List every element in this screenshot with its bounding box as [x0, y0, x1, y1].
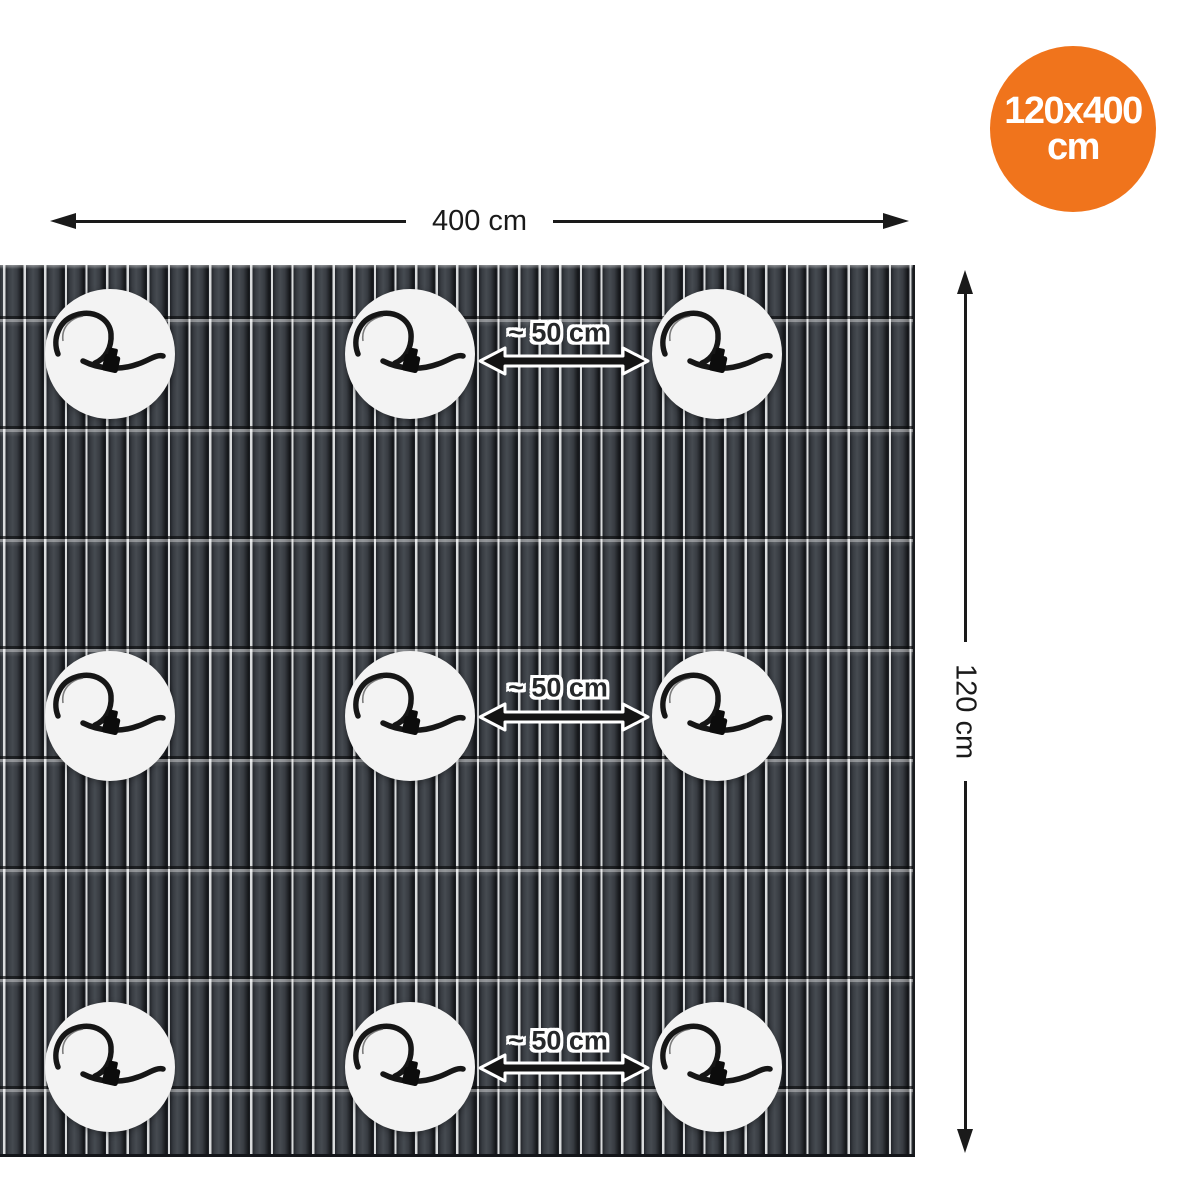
cable-tie-icon: [345, 651, 475, 781]
height-dimension-line: [964, 781, 967, 1129]
width-dimension-line: [76, 220, 406, 223]
cable-tie-icon: [45, 289, 175, 419]
cable-tie-marker: [45, 289, 175, 419]
product-dimension-diagram: 120x400 cm 400 cm 120 cm: [0, 0, 1200, 1200]
arrowhead-right-icon: [883, 213, 909, 229]
cable-tie-marker: [345, 289, 475, 419]
double-arrow-icon: [478, 1052, 650, 1084]
double-arrow-icon: [478, 701, 650, 733]
width-dimension-line: [553, 220, 883, 223]
cable-tie-icon: [345, 1002, 475, 1132]
height-dimension-label: 120 cm: [949, 664, 982, 759]
arrowhead-down-icon: [957, 1129, 973, 1153]
width-dimension: 400 cm: [50, 200, 909, 242]
size-badge: 120x400 cm: [990, 46, 1156, 212]
cable-tie-marker: [345, 1002, 475, 1132]
cable-tie-marker: [345, 651, 475, 781]
cable-tie-icon: [345, 289, 475, 419]
cable-tie-icon: [652, 1002, 782, 1132]
height-dimension: 120 cm: [944, 270, 986, 1153]
cable-tie-icon: [652, 289, 782, 419]
arrowhead-up-icon: [957, 270, 973, 294]
cable-tie-marker: [652, 289, 782, 419]
size-badge-unit: cm: [1047, 129, 1099, 165]
height-dimension-line: [964, 294, 967, 642]
cable-tie-icon: [45, 1002, 175, 1132]
size-badge-dimensions: 120x400: [1004, 93, 1141, 129]
width-dimension-label: 400 cm: [432, 205, 527, 238]
cable-tie-marker: [652, 1002, 782, 1132]
cable-tie-icon: [652, 651, 782, 781]
double-arrow-icon: [478, 345, 650, 377]
arrowhead-left-icon: [50, 213, 76, 229]
spacing-label: ~ 50 cm: [508, 318, 608, 349]
spacing-label: ~ 50 cm: [508, 673, 608, 704]
cable-tie-marker: [45, 1002, 175, 1132]
cable-tie-marker: [652, 651, 782, 781]
cable-tie-marker: [45, 651, 175, 781]
cable-tie-icon: [45, 651, 175, 781]
